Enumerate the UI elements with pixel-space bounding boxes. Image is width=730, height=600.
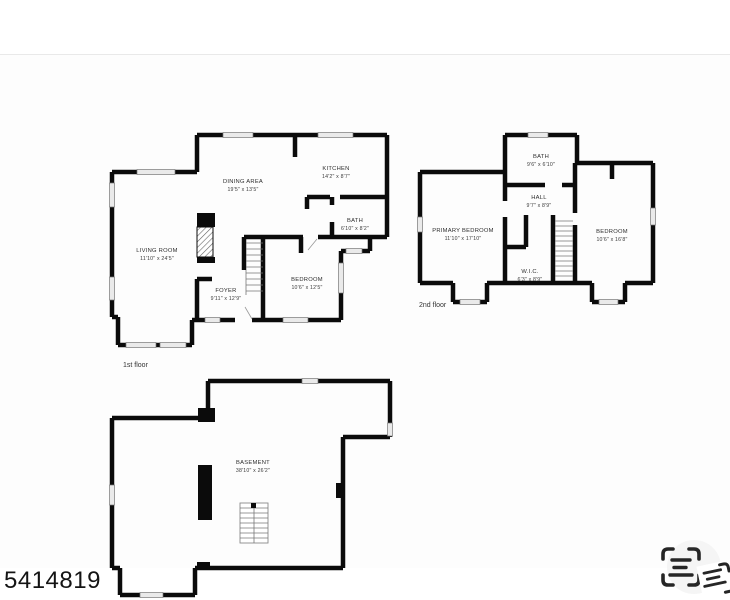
photo-id-label: 5414819	[4, 568, 101, 594]
fireplace-hearth-hatch	[197, 227, 213, 257]
room-dims: 10'6" x 12'5"	[291, 285, 322, 291]
scan-text-button[interactable]	[652, 537, 730, 600]
floorplan-second-floor: BATH 9'6" x 6'10" HALL 9'7" x 8'9" PRIMA…	[414, 129, 660, 313]
fireplace-front	[197, 257, 215, 263]
room-dims: 9'7" x 8'9"	[527, 203, 552, 209]
room-dims: 9'11" x 12'9"	[211, 296, 242, 302]
room-name: BATH	[347, 218, 363, 224]
room-dims: 10'6" x 16'8"	[596, 237, 627, 243]
room-dims: 14'2" x 8'7"	[322, 174, 350, 180]
stairs-landing-mark	[251, 503, 256, 508]
room-name: LIVING ROOM	[136, 248, 177, 254]
chimney	[198, 465, 212, 520]
stairs-treads	[246, 243, 263, 295]
floorplan-first-floor: LIVING ROOM 11'10" x 24'5" DINING AREA 1…	[108, 127, 395, 371]
floor-label-second: 2nd floor	[419, 302, 447, 309]
room-name: BEDROOM	[596, 229, 628, 235]
room-dims: 9'6" x 6'10"	[527, 162, 555, 168]
floorplan-basement: BASEMENT 38'10" x 26'2" Basement 1	[108, 377, 394, 600]
room-name: DINING AREA	[223, 179, 263, 185]
room-name: FOYER	[215, 288, 236, 294]
floor-label-first: 1st floor	[123, 362, 149, 369]
stairs-treads	[555, 221, 573, 276]
room-dims: 38'10" x 26'2"	[236, 468, 270, 474]
room-name: BASEMENT	[236, 460, 270, 466]
fireplace-back	[197, 213, 215, 227]
room-name: W.I.C.	[521, 269, 538, 275]
first-floor-windows	[110, 133, 363, 348]
room-dims: 11'10" x 17'10"	[445, 236, 482, 242]
basement-windows	[110, 379, 393, 598]
room-dims: 6'10" x 8'2"	[341, 226, 369, 232]
door-stub-bottom	[197, 562, 210, 568]
basement-walls	[112, 381, 390, 595]
room-dims: 11'10" x 24'5"	[140, 256, 174, 262]
scan-text-icon	[652, 537, 730, 600]
room-dims: 6'3" x 8'9"	[518, 277, 543, 283]
floorplan-photo-viewer: LIVING ROOM 11'10" x 24'5" DINING AREA 1…	[0, 0, 730, 600]
wall-notch	[198, 408, 215, 422]
room-name: KITCHEN	[322, 166, 349, 172]
room-dims: 19'5" x 13'5"	[227, 187, 258, 193]
room-name: BEDROOM	[291, 277, 323, 283]
floorplan-image: LIVING ROOM 11'10" x 24'5" DINING AREA 1…	[0, 55, 730, 568]
room-name: BATH	[533, 154, 549, 160]
room-name: HALL	[531, 195, 547, 201]
door-stub-right	[336, 483, 343, 498]
room-name: PRIMARY BEDROOM	[432, 228, 494, 234]
